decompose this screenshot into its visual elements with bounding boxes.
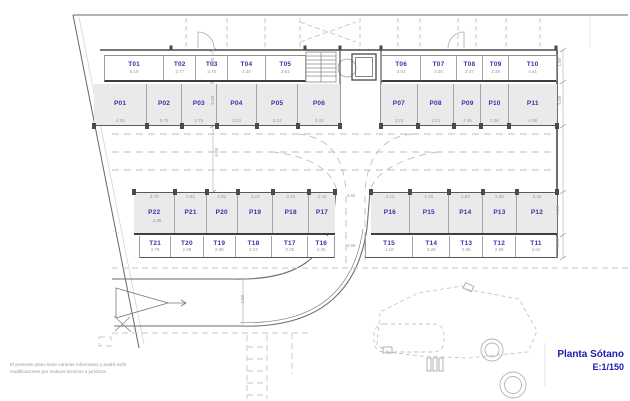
stall-dimension: 3.23 <box>418 119 454 124</box>
parking-stall-P22: P223.78 <box>134 193 174 233</box>
lobby-walls <box>340 50 381 126</box>
parking-stall-P09: P092.35 <box>453 84 480 125</box>
stall-label: P09 <box>461 101 473 108</box>
parking-stall-P20: P202.82 <box>206 193 237 233</box>
upper-floor-dashed-overlay <box>186 18 540 47</box>
survey-cross-marks <box>114 316 131 332</box>
stall-dimension: 2.82 <box>207 195 237 200</box>
storage-unit-T04: T043.25 <box>227 56 264 80</box>
storage-row-top-right: T063.61T073.25T082.37T092.38T104.41 <box>381 55 557 82</box>
stall-dimension: 3.23 <box>257 119 297 124</box>
stall-label: P08 <box>430 101 442 108</box>
parking-stall-P11: P114.38 <box>508 84 557 125</box>
stall-dimension: 3.78 <box>134 195 174 200</box>
stall-label: P22 <box>148 210 160 217</box>
stall-label: T04 <box>241 62 253 69</box>
disclaimer-line2: modificaciones por motivos técnicos o ju… <box>10 369 127 376</box>
stall-dimension: 3.42 <box>517 195 557 200</box>
stall-dimension: 2.36 <box>481 119 507 124</box>
stall-dimension: 2.38 <box>491 70 500 75</box>
stall-label: T10 <box>527 62 539 69</box>
stall-label: P17 <box>316 210 328 217</box>
stall-dimension: 2.35 <box>454 119 480 124</box>
storage-unit-T14: T143.28 <box>412 236 449 257</box>
stall-label: P14 <box>459 210 471 217</box>
dim-trastero-depth-right: 1.80 <box>558 52 563 72</box>
storage-row-bottom-right: T154.18T143.28T132.88T122.88T113.62 <box>365 236 557 258</box>
stall-label: P19 <box>249 210 261 217</box>
dim-parking-depth-right: 5.08 <box>558 90 563 110</box>
stall-label: P18 <box>285 210 297 217</box>
parking-stall-P19: P193.23 <box>237 193 273 233</box>
storage-unit-T19: T192.88 <box>203 236 235 257</box>
stall-dimension: 3.43 <box>298 119 340 124</box>
storage-unit-T11: T113.62 <box>515 236 556 257</box>
stall-dimension: 4.25 <box>94 119 146 124</box>
stall-dimension: 4.18 <box>385 248 394 253</box>
stall-label: P06 <box>313 101 325 108</box>
stall-dimension: 2.37 <box>465 70 474 75</box>
stall-dimension: 2.88 <box>215 248 224 253</box>
stall-label: P12 <box>531 210 543 217</box>
storage-row-bottom-left: T212.78T202.88T192.88T183.23T173.25T162.… <box>139 236 335 258</box>
stall-label: P02 <box>158 101 170 108</box>
stall-dimension: 3.23 <box>217 119 257 124</box>
stall-dimension: 3.61 <box>397 70 406 75</box>
storage-unit-T05: T053.51 <box>265 56 305 80</box>
dim-aisle-width: 6.00 <box>215 142 220 162</box>
ramp-arrow <box>116 288 186 318</box>
stall-label: P01 <box>114 101 126 108</box>
parking-row-top-left: P014.25P022.75P032.75P043.23P053.23P063.… <box>94 84 340 126</box>
parking-stall-P02: P022.75 <box>146 84 181 125</box>
stall-label: P05 <box>271 101 283 108</box>
stall-label: P03 <box>193 101 205 108</box>
parking-row-bottom-right: P163.23P153.25P142.83P132.83P123.42 <box>371 192 557 235</box>
stall-dimension: 3.23 <box>273 195 308 200</box>
stall-label: T08 <box>463 62 475 69</box>
stall-dimension: 2.83 <box>483 195 516 200</box>
stall-dimension: 3.25 <box>434 70 443 75</box>
stall-label: T06 <box>395 62 407 69</box>
stall-dimension: 2.88 <box>183 248 192 253</box>
plan-title: Planta Sótano <box>557 349 624 362</box>
disclaimer-line1: El presente plano tiene carácter informa… <box>10 362 127 369</box>
stall-label: P15 <box>423 210 435 217</box>
parking-stall-P14: P142.83 <box>448 193 482 233</box>
stall-dimension: 3.25 <box>242 70 251 75</box>
storage-unit-T01: T015.19 <box>105 56 163 80</box>
stall-dimension: 3.28 <box>427 248 436 253</box>
storage-unit-T06: T063.61 <box>382 56 420 80</box>
parking-stall-P08: P083.23 <box>417 84 454 125</box>
storage-unit-T21: T212.78 <box>140 236 170 257</box>
parking-stall-P04: P043.23 <box>216 84 257 125</box>
elevator-shaft <box>352 54 376 80</box>
parking-stall-P07: P073.23 <box>381 84 417 125</box>
storage-unit-T08: T082.37 <box>456 56 482 80</box>
parking-stall-P12: P123.42 <box>516 193 557 233</box>
stall-dimension: 3.62 <box>532 248 541 253</box>
stall-dimension: 2.78 <box>151 248 160 253</box>
stall-dimension: 3.23 <box>371 195 409 200</box>
stall-label: T07 <box>433 62 445 69</box>
parking-row-top-right: P073.23P083.23P092.35P102.36P114.38 <box>381 84 557 126</box>
parking-stall-P10: P102.36 <box>480 84 507 125</box>
stall-label: T05 <box>279 62 291 69</box>
stall-dimension: 2.43 <box>309 195 335 200</box>
parking-stall-P17: P172.43 <box>308 193 335 233</box>
storage-unit-T12: T122.88 <box>482 236 515 257</box>
stall-label: P07 <box>393 101 405 108</box>
storage-unit-T15: T154.18 <box>366 236 412 257</box>
disclaimer-note: El presente plano tiene carácter informa… <box>10 362 127 376</box>
storage-unit-T13: T132.88 <box>449 236 482 257</box>
title-block: Planta Sótano E:1/150 <box>557 349 624 373</box>
floor-plan-basement: T015.19T022.77T032.76T043.25T053.51 T063… <box>0 0 630 401</box>
parking-stall-P18: P183.23 <box>272 193 308 233</box>
stall-dimension: 2.77 <box>175 70 184 75</box>
dim-ramp-gap-top: 4.82 <box>336 194 366 199</box>
parking-row-bottom-left: P223.78P212.82P202.82P193.23P183.23P172.… <box>134 192 335 235</box>
stall-dimension: 3.25 <box>285 248 294 253</box>
stall-dimension: 5.19 <box>130 70 139 75</box>
stall-label: P21 <box>184 210 196 217</box>
storage-unit-T18: T183.23 <box>235 236 271 257</box>
stall-dimension: 3.23 <box>381 119 417 124</box>
stall-dimension: 2.88 <box>462 248 471 253</box>
dim-trastero-depth-right2: 1.80 <box>556 233 561 253</box>
storage-unit-T10: T104.41 <box>508 56 556 80</box>
stall-dimension: 2.82 <box>175 195 205 200</box>
stall-label: P20 <box>216 210 228 217</box>
dim-ramp-width: 4.00 <box>241 289 246 309</box>
stall-dimension: 3.23 <box>238 195 273 200</box>
stall-dimension: 2.75 <box>147 119 181 124</box>
staircase <box>306 52 336 82</box>
parking-stall-P16: P163.23 <box>371 193 409 233</box>
storage-unit-T16: T162.35 <box>307 236 334 257</box>
dim-p22-inner: 2.88 <box>142 219 172 224</box>
stall-label: P10 <box>488 101 500 108</box>
door-swing-arcs <box>198 32 464 48</box>
dim-parking-depth-right2: 5.08 <box>556 200 561 220</box>
garden-icons <box>383 283 474 371</box>
storage-unit-T02: T022.77 <box>163 56 195 80</box>
stall-label: P11 <box>527 101 539 108</box>
dim-trastero-depth-left: 1.80 <box>211 52 216 72</box>
stall-dimension: 2.75 <box>182 119 216 124</box>
stall-label: P16 <box>384 210 396 217</box>
stall-dimension: 2.83 <box>449 195 482 200</box>
stall-dimension: 3.25 <box>410 195 448 200</box>
parking-stall-P21: P212.82 <box>174 193 205 233</box>
stall-dimension: 2.35 <box>317 248 326 253</box>
parking-stall-P05: P053.23 <box>256 84 297 125</box>
tree-icons <box>481 339 526 398</box>
stall-dimension: 3.23 <box>249 248 258 253</box>
stall-label: T02 <box>174 62 186 69</box>
parking-stall-P15: P153.25 <box>409 193 448 233</box>
plan-scale: E:1/150 <box>557 362 624 373</box>
stall-label: P04 <box>230 101 242 108</box>
parking-stall-P01: P014.25 <box>94 84 146 125</box>
stall-label: T09 <box>490 62 502 69</box>
parking-stall-P13: P132.83 <box>482 193 516 233</box>
stall-dimension: 2.88 <box>495 248 504 253</box>
stall-label: T01 <box>128 62 140 69</box>
stall-dimension: 4.41 <box>528 70 537 75</box>
dashed-site-lines <box>99 268 628 399</box>
column-circle <box>338 59 356 77</box>
storage-row-top-left: T015.19T022.77T032.76T043.25T053.51 <box>104 55 306 82</box>
storage-unit-T09: T092.38 <box>482 56 508 80</box>
parking-stall-P06: P063.43 <box>297 84 340 125</box>
stall-dimension: 3.51 <box>281 70 290 75</box>
dim-parking-depth-left: 5.08 <box>211 90 216 110</box>
storage-unit-T17: T173.25 <box>271 236 307 257</box>
dim-ramp-gap-bottom: 4.90 <box>336 244 366 249</box>
storage-unit-T07: T073.25 <box>420 56 455 80</box>
pool-outline <box>374 286 537 358</box>
stall-dimension: 4.38 <box>509 119 557 124</box>
storage-unit-T20: T202.88 <box>170 236 202 257</box>
stall-label: P13 <box>493 210 505 217</box>
